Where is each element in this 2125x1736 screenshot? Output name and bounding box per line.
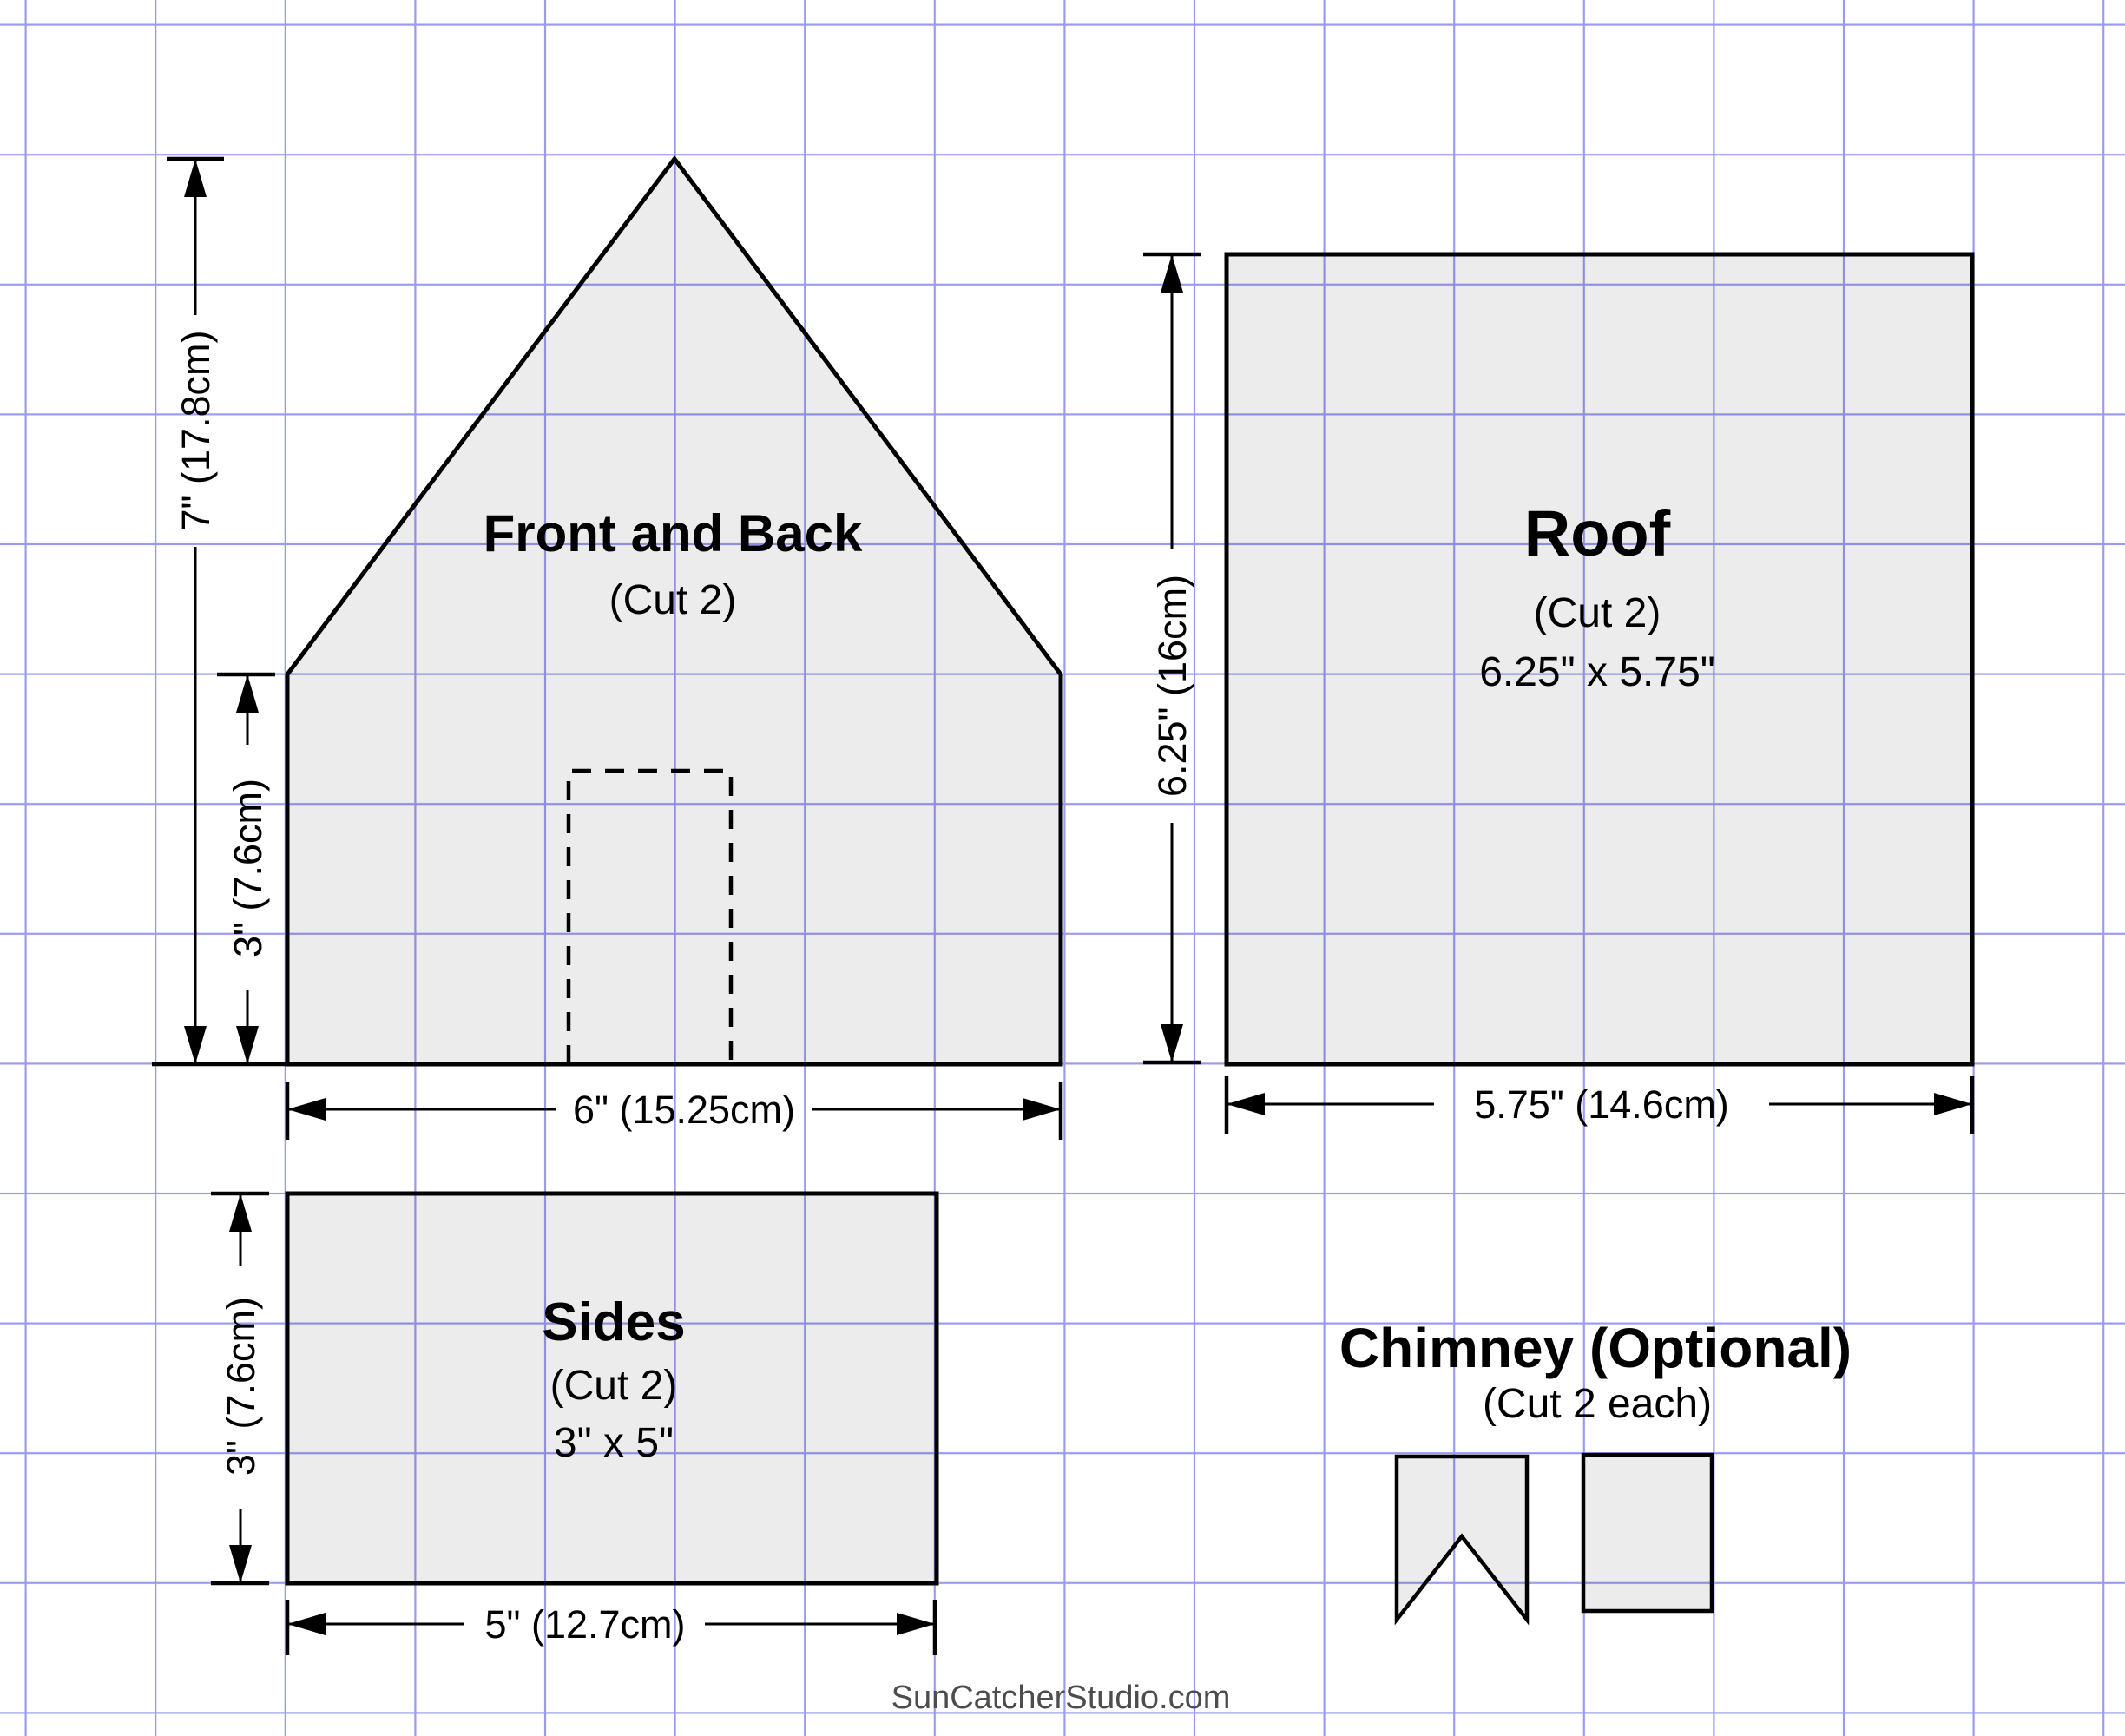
piece-sides: Sides (Cut 2) 3" x 5"	[287, 1193, 937, 1583]
sides-title: Sides	[542, 1292, 685, 1352]
piece-roof: Roof (Cut 2) 6.25" x 5.75"	[1227, 254, 1972, 1064]
roof-title: Roof	[1524, 497, 1671, 569]
dim-label-front-back-width: 6" (15.25cm)	[573, 1088, 795, 1132]
chimney-rect-outline	[1583, 1455, 1712, 1611]
sides-size-label: 3" x 5"	[554, 1420, 674, 1466]
pattern-sheet: Front and Back (Cut 2) Roof (Cut 2) 6.25…	[0, 0, 2125, 1736]
front-back-subtitle: (Cut 2)	[609, 577, 737, 623]
roof-size-label: 6.25" x 5.75"	[1479, 649, 1715, 695]
dim-label-sides-width: 5" (12.7cm)	[484, 1602, 685, 1647]
dim-label-sides-height: 3" (7.6cm)	[219, 1297, 263, 1476]
dim-label-front-back-wall: 3" (7.6cm)	[226, 779, 270, 957]
pattern-canvas: Front and Back (Cut 2) Roof (Cut 2) 6.25…	[0, 0, 2125, 1736]
dim-label-roof-height: 6.25" (16cm)	[1150, 575, 1194, 797]
roof-subtitle: (Cut 2)	[1534, 590, 1661, 636]
dim-label-roof-width: 5.75" (14.6cm)	[1474, 1082, 1729, 1127]
watermark-text: SunCatcherStudio.com	[891, 1680, 1231, 1716]
dim-label-front-back-height: 7" (17.8cm)	[174, 330, 218, 530]
front-back-title: Front and Back	[484, 504, 863, 562]
chimney-title: Chimney (Optional)	[1339, 1317, 1852, 1379]
chimney-subtitle: (Cut 2 each)	[1483, 1381, 1712, 1427]
sides-subtitle: (Cut 2)	[550, 1363, 678, 1409]
